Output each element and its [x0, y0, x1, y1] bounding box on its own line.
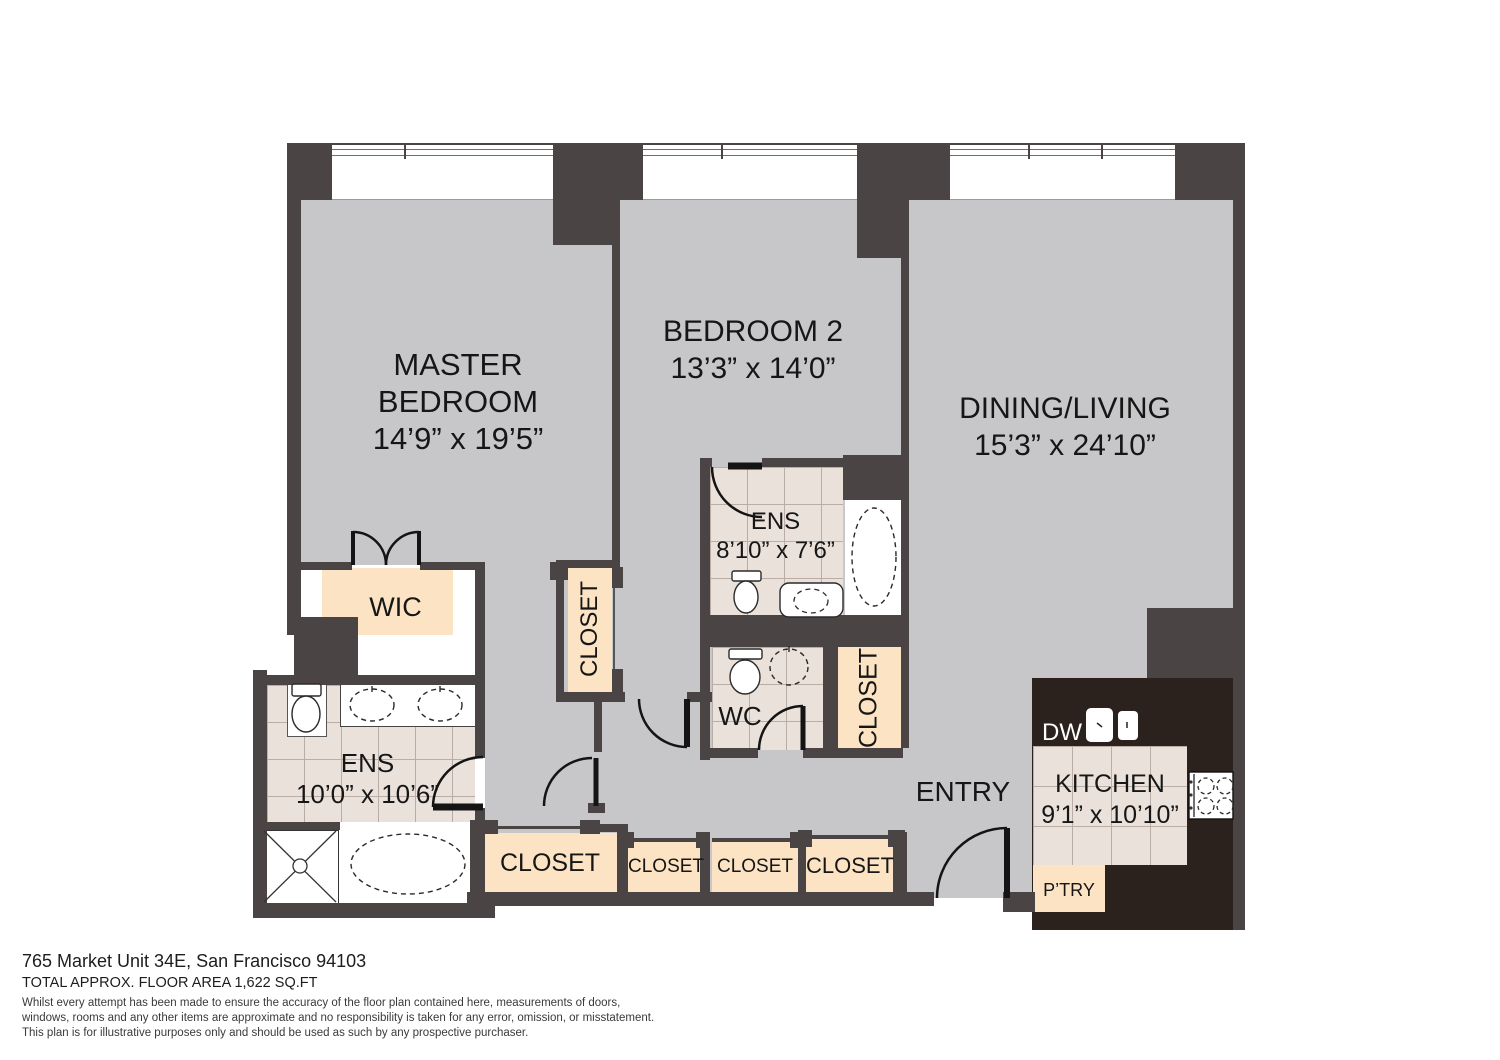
- sink-master-right-icon: [418, 689, 462, 721]
- ens-master-dims: 10’0” x 10’6”: [260, 779, 475, 810]
- footer-address: 765 Market Unit 34E, San Francisco 94103: [22, 951, 366, 972]
- label-wic: WIC: [330, 592, 461, 623]
- toilet-ens2-tank: [732, 571, 761, 581]
- dining-living-name: DINING/LIVING: [925, 390, 1205, 427]
- toilet-master-tank: [292, 684, 321, 696]
- master-bedroom-dims: 14’9” x 19’5”: [330, 420, 586, 457]
- kitchen-dims: 9’1” x 10’10”: [1030, 800, 1190, 831]
- bedroom2-name: BEDROOM 2: [620, 313, 886, 350]
- shower-drain-icon: [293, 859, 307, 873]
- bathtub-master-icon: [351, 834, 465, 894]
- door-arc-wic-left: [353, 532, 386, 565]
- door-arc-entry: [937, 828, 1007, 898]
- bathtub-bedroom2-icon: [852, 508, 896, 606]
- label-pantry: P’TRY: [1033, 880, 1105, 901]
- ens-master-name: ENS: [260, 748, 475, 779]
- toilet-master-bowl: [292, 696, 320, 732]
- bedroom2-dims: 13’3” x 14’0”: [620, 350, 886, 387]
- label-entry: ENTRY: [897, 776, 1029, 808]
- footer-disclaimer-line3: This plan is for illustrative purposes o…: [22, 1027, 528, 1039]
- label-ens-bedroom2: ENS 8’10” x 7’6”: [703, 507, 848, 565]
- label-closet-d: CLOSET: [806, 853, 893, 879]
- label-dining-living: DINING/LIVING 15’3” x 24’10”: [925, 390, 1205, 464]
- label-ens-master: ENS 10’0” x 10’6”: [260, 748, 475, 810]
- label-closet-large: CLOSET: [483, 849, 617, 878]
- label-closet-master-hall: CLOSET: [576, 581, 604, 677]
- door-arc-wic-right: [386, 532, 419, 565]
- door-arc-bedroom2: [639, 699, 687, 747]
- toilet-ens2-bowl: [734, 581, 758, 613]
- toilet-wc-bowl: [730, 660, 760, 694]
- kitchen-name: KITCHEN: [1030, 769, 1190, 800]
- footer-disclaimer-line2: windows, rooms and any other items are a…: [22, 1012, 654, 1024]
- label-dishwasher: DW: [1036, 719, 1088, 747]
- label-closet-c: CLOSET: [712, 856, 798, 878]
- vanity-ens2: [780, 583, 843, 617]
- ens-bedroom2-name: ENS: [703, 507, 848, 536]
- ens-bedroom2-dims: 8’10” x 7’6”: [703, 536, 848, 565]
- sink-master-left-icon: [350, 689, 394, 721]
- master-bedroom-name-line2: BEDROOM: [330, 383, 586, 420]
- label-closet-b: CLOSET: [628, 856, 700, 878]
- label-kitchen: KITCHEN 9’1” x 10’10”: [1030, 769, 1190, 831]
- kitchen-sink-right-icon: [1117, 710, 1139, 741]
- floor-plan: MASTER BEDROOM 14’9” x 19’5” BEDROOM 2 1…: [0, 0, 1500, 1060]
- label-closet-bedroom2: CLOSET: [855, 648, 884, 748]
- door-arc-master-suite: [544, 758, 592, 806]
- master-bedroom-name-line1: MASTER: [330, 346, 586, 383]
- sink-wc-icon: [770, 649, 808, 685]
- toilet-wc-tank: [729, 649, 762, 659]
- label-master-bedroom: MASTER BEDROOM 14’9” x 19’5”: [330, 346, 586, 457]
- footer-disclaimer-line1: Whilst every attempt has been made to en…: [22, 997, 620, 1009]
- dining-living-dims: 15’3” x 24’10”: [925, 427, 1205, 464]
- label-wc: WC: [710, 701, 770, 732]
- label-bedroom2: BEDROOM 2 13’3” x 14’0”: [620, 313, 886, 387]
- footer-area: TOTAL APPROX. FLOOR AREA 1,622 SQ.FT: [22, 975, 317, 991]
